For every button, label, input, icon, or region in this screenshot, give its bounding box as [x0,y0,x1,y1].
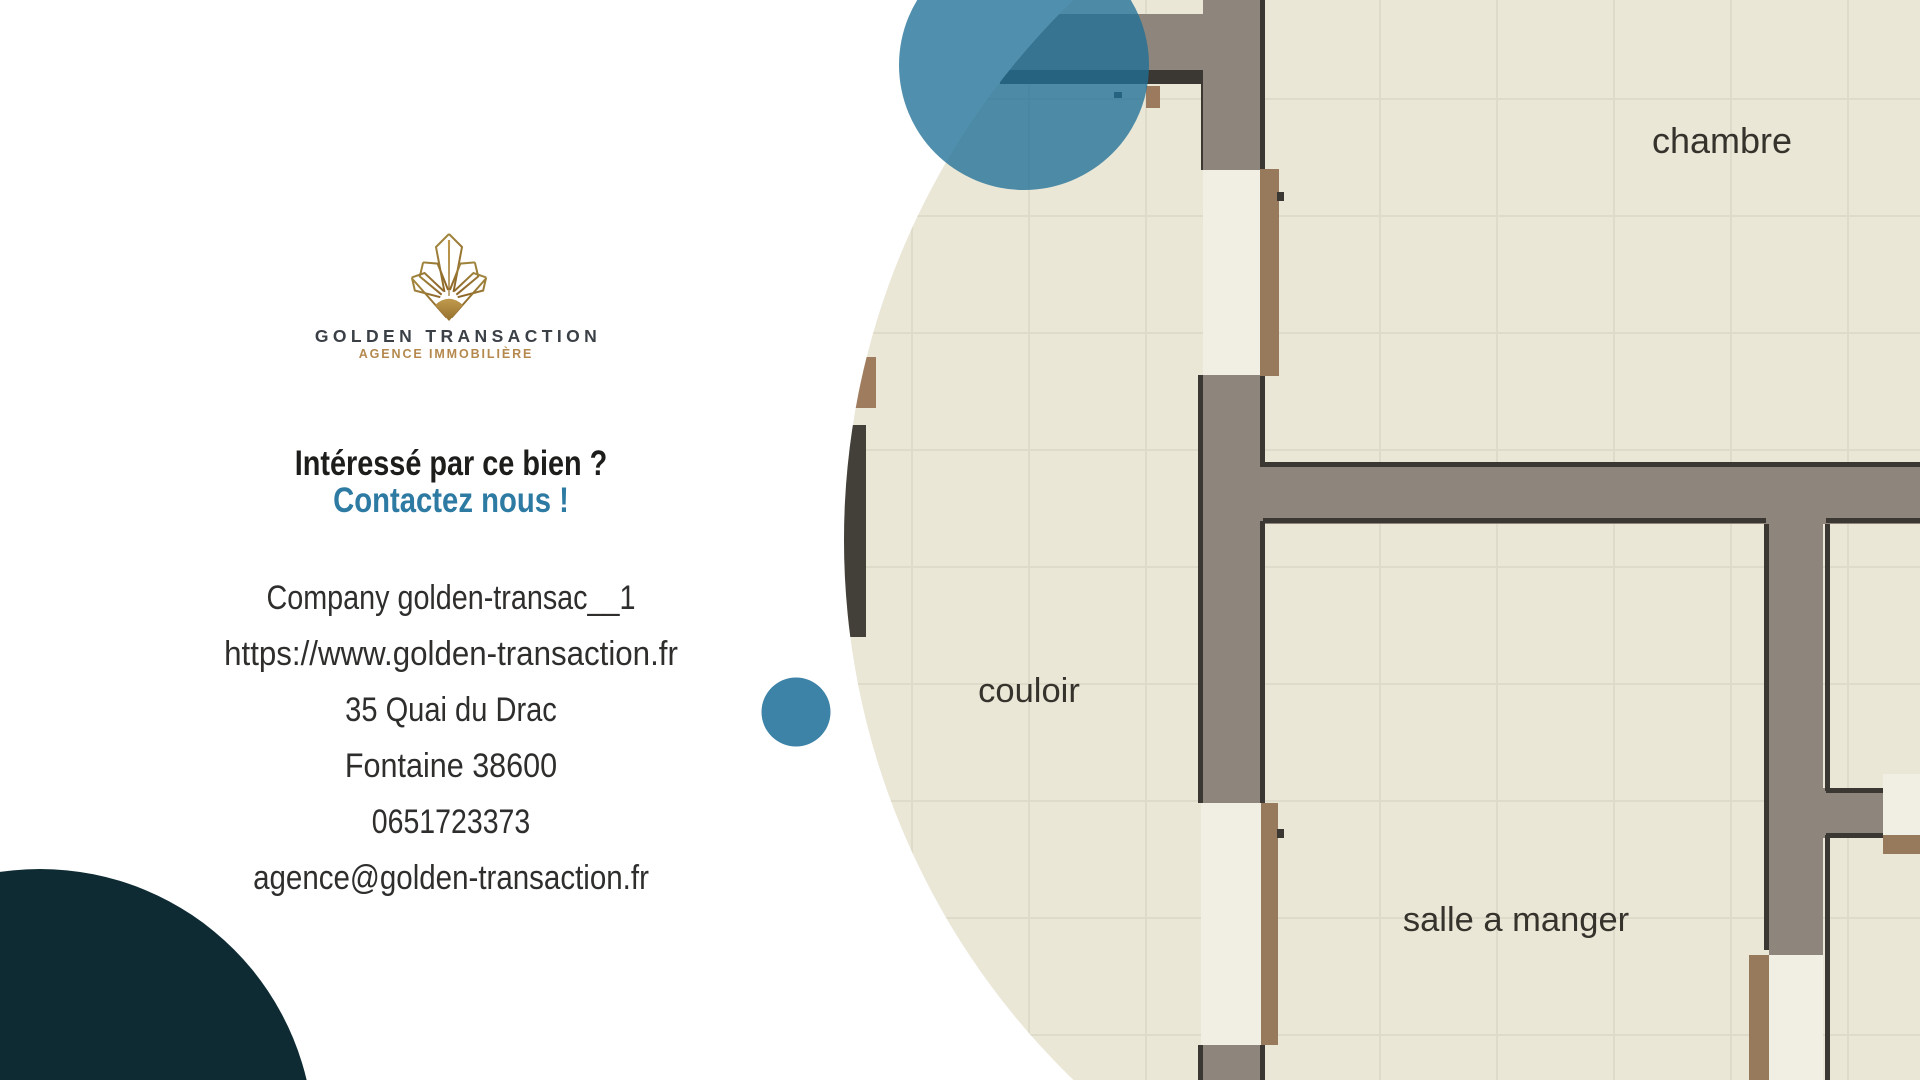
svg-text:couloir: couloir [978,672,1080,710]
svg-text:chambre: chambre [1652,120,1792,161]
svg-text:salle a manger: salle a manger [1403,901,1629,939]
